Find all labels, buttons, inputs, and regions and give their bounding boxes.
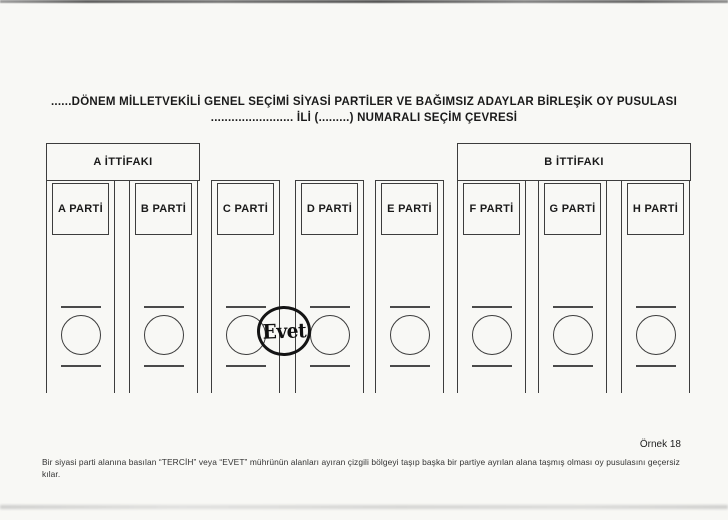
party-name-box: G PARTİ xyxy=(544,183,601,235)
party-column-g: G PARTİ xyxy=(538,180,607,393)
party-name-box: D PARTİ xyxy=(301,183,358,235)
example-number: Örnek 18 xyxy=(0,439,681,450)
party-name-box: A PARTİ xyxy=(52,183,109,235)
evet-stamp-label: Evet xyxy=(262,318,306,344)
party-column-b: B PARTİ xyxy=(129,180,198,393)
party-column-d: D PARTİ xyxy=(295,180,364,393)
separator-dash-bottom xyxy=(636,365,676,367)
stamp-area-circle xyxy=(61,315,101,355)
ballot-title-line1: ......DÖNEM MİLLETVEKİLİ GENEL SEÇİMİ Sİ… xyxy=(0,95,728,111)
ballot-title-line2: ........................ İLİ (.........)… xyxy=(0,111,728,127)
separator-dash-bottom xyxy=(144,365,184,367)
separator-dash-bottom xyxy=(553,365,593,367)
separator-dash-bottom xyxy=(310,365,350,367)
stamp-area-circle xyxy=(144,315,184,355)
scan-artifact-bottom xyxy=(0,505,728,509)
stamp-area-circle xyxy=(310,315,350,355)
party-name-label: D PARTİ xyxy=(307,203,352,215)
party-name-label: A PARTİ xyxy=(58,203,103,215)
separator-dash-bottom xyxy=(61,365,101,367)
separator-dash-top xyxy=(390,306,430,308)
separator-dash-bottom xyxy=(390,365,430,367)
separator-dash-top xyxy=(61,306,101,308)
ballot-title: ......DÖNEM MİLLETVEKİLİ GENEL SEÇİMİ Sİ… xyxy=(0,95,728,126)
alliance-a-label: A İTTİFAKI xyxy=(93,156,152,168)
party-column-a: A PARTİ xyxy=(46,180,115,393)
party-name-box: B PARTİ xyxy=(135,183,192,235)
party-name-box: E PARTİ xyxy=(381,183,438,235)
footer-note: Bir siyasi parti alanına basılan “TERCİH… xyxy=(42,457,682,480)
footer-note-line2: kılar. xyxy=(42,469,682,481)
party-name-label: F PARTİ xyxy=(469,203,513,215)
stamp-area-circle xyxy=(553,315,593,355)
party-name-box: C PARTİ xyxy=(217,183,274,235)
party-name-label: C PARTİ xyxy=(223,203,268,215)
separator-dash-bottom xyxy=(226,365,266,367)
party-name-label: G PARTİ xyxy=(550,203,596,215)
party-column-e: E PARTİ xyxy=(375,180,444,393)
separator-dash-top xyxy=(636,306,676,308)
alliance-b-header: B İTTİFAKI xyxy=(457,143,691,181)
party-column-c: C PARTİ xyxy=(211,180,280,393)
footer-note-line1: Bir siyasi parti alanına basılan “TERCİH… xyxy=(42,457,682,469)
separator-dash-top xyxy=(553,306,593,308)
party-name-label: B PARTİ xyxy=(141,203,186,215)
stamp-area-circle xyxy=(390,315,430,355)
party-name-box: H PARTİ xyxy=(627,183,684,235)
stamp-area-circle xyxy=(472,315,512,355)
party-column-f: F PARTİ xyxy=(457,180,526,393)
party-name-label: E PARTİ xyxy=(387,203,432,215)
separator-dash-bottom xyxy=(472,365,512,367)
party-name-box: F PARTİ xyxy=(463,183,520,235)
separator-dash-top xyxy=(472,306,512,308)
separator-dash-top xyxy=(310,306,350,308)
party-column-h: H PARTİ xyxy=(621,180,690,393)
party-name-label: H PARTİ xyxy=(633,203,678,215)
separator-dash-top xyxy=(144,306,184,308)
ballot-example-scan: ......DÖNEM MİLLETVEKİLİ GENEL SEÇİMİ Sİ… xyxy=(0,0,728,520)
scan-artifact-top xyxy=(0,0,728,3)
separator-dash-top xyxy=(226,306,266,308)
stamp-area-circle xyxy=(636,315,676,355)
alliance-b-label: B İTTİFAKI xyxy=(544,156,604,168)
alliance-a-header: A İTTİFAKI xyxy=(46,143,200,181)
